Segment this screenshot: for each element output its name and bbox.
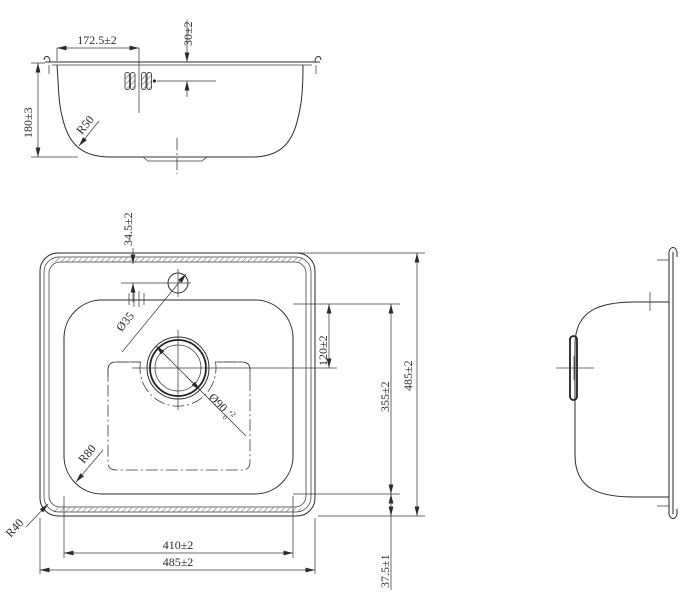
plan-bowl-radius-label: R80 — [75, 442, 99, 466]
plan-dim-faucet-offset-label: 34.5±2 — [121, 212, 135, 246]
plan-faucet-dia-label: Ø35 — [113, 309, 137, 334]
plan-faucet-knurl-marks — [129, 291, 144, 307]
plan-dim-rim-width: 37.5±1 — [378, 494, 392, 590]
front-radius-callout: R50 — [73, 113, 99, 146]
plan-dim-overall-length: 485±2 — [297, 253, 425, 516]
sink-technical-drawing: 172.5±2 30±2 180±3 R50 — [0, 0, 698, 600]
side-view — [556, 248, 677, 519]
plan-drain-dia-callout: Ø90 +2 0 — [156, 346, 246, 436]
plan-bowl-edge — [64, 300, 293, 494]
plan-bottom-rolled-edge — [53, 508, 302, 512]
plan-dim-rim-width-label: 37.5±1 — [378, 554, 392, 588]
plan-dim-overall-length-label: 485±2 — [401, 360, 415, 391]
plan-dim-drain-offset: 120±2 — [293, 304, 400, 368]
plan-dim-bowl-length-label: 355±2 — [378, 381, 392, 412]
plan-corner-radius-callout: R40 — [3, 504, 48, 540]
plan-dim-drain-offset-label: 120±2 — [316, 335, 330, 366]
side-bowl-outline — [575, 302, 669, 497]
plan-rim-line-3 — [49, 262, 306, 507]
plan-dim-overall-width-label: 485±2 — [163, 555, 194, 569]
front-drain-recess — [143, 157, 207, 161]
plan-platform-left-shoulder — [108, 362, 141, 380]
front-faucet-studs — [125, 73, 156, 90]
front-radius-label: R50 — [73, 113, 97, 137]
plan-drain-dia-tol-upper: +2 — [226, 408, 237, 419]
plan-corner-radius-label: R40 — [3, 516, 27, 540]
plan-dim-bowl-width: 410±2 — [64, 496, 293, 558]
plan-view: Ø90 +2 0 Ø35 — [3, 212, 425, 590]
technical-drawing-canvas: 172.5±2 30±2 180±3 R50 — [0, 0, 698, 600]
front-dim-depth-label: 180±3 — [21, 107, 35, 138]
front-view: 172.5±2 30±2 180±3 R50 — [21, 20, 321, 174]
front-dim-depth: 180±3 — [21, 63, 78, 157]
front-stud-center-dot — [153, 79, 156, 82]
plan-platform-right-shoulder — [216, 362, 251, 380]
plan-rim-line-2 — [44, 257, 311, 512]
front-right-clip-icon — [315, 56, 321, 62]
front-bowl-outline — [57, 65, 303, 157]
front-dim-stud-offset-x-label: 172.5±2 — [77, 33, 117, 47]
plan-outer-edge — [40, 253, 315, 516]
front-dim-stud-offset-y: 30±2 — [157, 20, 216, 97]
plan-dim-bowl-length: 355±2 — [293, 304, 400, 494]
plan-dim-bowl-width-label: 410±2 — [163, 538, 194, 552]
plan-top-rolled-edge — [53, 258, 302, 262]
plan-faucet-hole — [165, 269, 191, 297]
plan-bowl-radius-callout: R80 — [75, 442, 103, 482]
plan-drain-dia-label: Ø90 — [206, 390, 231, 415]
front-left-clip-icon — [44, 56, 50, 62]
front-dim-stud-offset-y-label: 30±2 — [181, 21, 195, 46]
